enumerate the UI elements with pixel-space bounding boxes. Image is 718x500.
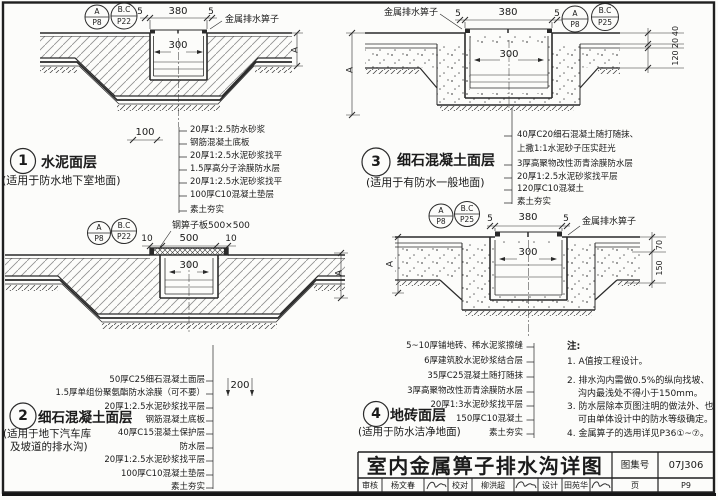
- sign-name-design: 田苑华: [564, 482, 588, 490]
- dim-inner: 300: [179, 261, 198, 271]
- atlas-number-value: 07J306: [669, 461, 704, 471]
- layer-label: 40厚C15混凝土保护层: [118, 429, 205, 438]
- detail-subtitle: (适用于防水洁净地面): [358, 427, 461, 438]
- ref-bubble-bottom: P8: [92, 19, 101, 27]
- ref-bubble-top: A: [572, 10, 577, 18]
- dim-inner: 300: [499, 50, 518, 60]
- layer-label: 6厚建筑胶水泥砂浆结合层: [424, 357, 523, 366]
- layer-label: 150厚C10混凝土: [456, 415, 523, 424]
- ref-bubble-bottom: P8: [570, 21, 579, 29]
- ref-bubble-top: B.C: [118, 6, 131, 14]
- atlas-number-label: 图集号: [621, 461, 650, 471]
- grate-label: 钢箅子板500×500: [172, 222, 250, 231]
- layer-label: 120厚C10混凝土: [517, 185, 584, 194]
- ref-bubble-bottom: P25: [460, 216, 474, 224]
- detail-number: 2: [18, 409, 28, 423]
- layer-label: 上撒1:1水泥砂子压实赶光: [517, 145, 616, 154]
- grate-label: 金属排水箅子: [225, 16, 279, 25]
- dim-width: 380: [498, 8, 517, 18]
- sign-label-review: 审核: [362, 482, 378, 490]
- sheet-title: 室内金属箅子排水沟详图: [358, 456, 612, 476]
- layer-label: 100厚C10混凝土垫层: [121, 470, 205, 479]
- detail-number: 1: [18, 154, 28, 168]
- ref-bubble-top: A: [94, 8, 99, 16]
- layer-label: 1.5厚单组份聚氨酯防水涂膜（可不要）: [55, 389, 205, 398]
- detail-subtitle: 及坡道的排水沟): [10, 442, 88, 453]
- dim-chain-20: 20: [672, 38, 680, 48]
- dim-chain-150: 150: [656, 260, 664, 275]
- dim-width: 380: [168, 7, 187, 17]
- ref-bubble-bottom: P22: [117, 18, 131, 26]
- ref-bubble-bottom: P8: [436, 218, 445, 226]
- note-line: 4. 金属箅子的选用详见P36①~⑦。: [567, 430, 709, 439]
- dim-depth-A: A: [336, 270, 345, 276]
- layer-label: 钢筋混凝土底板: [190, 139, 250, 148]
- layer-label: 素土夯实: [517, 198, 551, 207]
- layer-label: 20厚1:2.5水泥砂浆找平: [190, 178, 282, 187]
- ref-bubble-top: B.C: [599, 7, 612, 15]
- signature-scribble: [516, 482, 536, 488]
- dim-gap-right: 5: [563, 215, 569, 224]
- detail-number: 3: [371, 155, 381, 169]
- dim-gap-right: 5: [554, 10, 560, 19]
- layer-label: 35厚C25混凝土随打随抹: [427, 372, 523, 381]
- layer-label: 20厚1:2.5防水砂浆: [190, 126, 265, 135]
- layer-label: 素土夯实: [489, 429, 523, 438]
- detail-subtitle: (适用于有防水一般地面): [366, 177, 485, 188]
- ref-bubble-top: B.C: [118, 222, 131, 230]
- signature-scribble: [592, 482, 610, 488]
- dim-chain-70: 70: [656, 240, 664, 250]
- ref-bubble-top: A: [96, 224, 101, 232]
- layer-label: 3厚高聚物改性沥青涂膜防水层: [517, 160, 633, 169]
- grate-label: 金属排水箅子: [384, 9, 438, 18]
- detail-number: 4: [371, 407, 381, 421]
- dim-gap-left: 10: [141, 235, 152, 244]
- page-label: 页: [631, 482, 639, 490]
- dim-gap-left: 5: [487, 215, 493, 224]
- layer-label: 20厚1:2.5水泥砂浆找平层: [104, 403, 205, 412]
- dim-width: 500: [179, 234, 198, 244]
- sign-name-proof: 柳洪超: [481, 482, 505, 490]
- dim-gap-right: 5: [208, 8, 214, 17]
- layer-label: 40厚C20细石混凝土随打随抹、: [517, 131, 638, 140]
- layer-label: 素土夯实: [171, 483, 205, 492]
- layer-label: 20厚1:2.5水泥砂浆找平层: [104, 456, 205, 465]
- note-line: 1. A值按工程设计。: [567, 358, 648, 367]
- standard-drawing-page: A P8 B.C P22 5 380 5 金属排水箅子 300 A 100 1 …: [0, 0, 718, 500]
- layer-label: 50厚C25细石混凝土面层: [109, 376, 205, 385]
- page-number: P9: [681, 482, 691, 490]
- layer-label: 5~10厚铺地砖、稀水泥浆擦缝: [406, 342, 523, 351]
- dim-chain-40: 40: [672, 26, 680, 36]
- layer-label: 20厚1:2.5水泥砂浆找平: [190, 152, 282, 161]
- note-line: 可由单体设计中的防水等级确定。: [578, 416, 713, 425]
- detail-subtitle: (适用于地下汽车库: [3, 429, 91, 440]
- dim-width: 380: [518, 213, 537, 223]
- dim-100: 100: [135, 128, 154, 138]
- layer-label: 钢筋混凝土底板: [145, 416, 205, 425]
- signature-scribble: [427, 482, 446, 489]
- detail-title: 细石混凝土面层: [38, 412, 133, 426]
- sign-label-proof: 校对: [452, 482, 468, 490]
- notes-heading: 注:: [567, 342, 580, 352]
- detail-subtitle: (适用于防水地下室地面): [2, 175, 121, 186]
- note-line: 3. 防水层除本页图注明的做法外、也: [567, 403, 713, 412]
- ref-bubble-top: A: [438, 207, 443, 215]
- layer-label: 20厚1:2.5水泥砂浆找平层: [517, 173, 618, 182]
- layer-label: 3厚高聚物改性沥青涂膜防水层: [407, 387, 523, 396]
- ref-bubble-bottom: P25: [598, 19, 612, 27]
- layer-label: 100厚C10混凝土垫层: [190, 191, 274, 200]
- dim-inner: 300: [518, 248, 537, 258]
- ref-bubble-bottom: P22: [117, 233, 131, 241]
- layer-label: 1.5厚高分子涂膜防水层: [190, 165, 280, 174]
- grate-label: 金属排水箅子: [582, 218, 636, 227]
- note-line: 沟内最浅处不得小于150mm。: [578, 390, 703, 399]
- ref-bubble-bottom: P8: [94, 235, 103, 243]
- detail-3-drawing: [346, 4, 684, 205]
- dim-200: 200: [230, 381, 249, 391]
- dim-gap-right: 10: [225, 235, 236, 244]
- dim-gap-left: 5: [455, 10, 461, 19]
- detail-title: 地砖面层: [390, 409, 446, 423]
- dim-depth-A: A: [387, 261, 396, 267]
- sign-label-design: 设计: [542, 482, 558, 490]
- layer-label: 素土夯实: [190, 206, 224, 215]
- dim-inner: 300: [168, 41, 187, 51]
- note-line: 2. 排水沟内需做0.5%的纵向找坡、: [567, 377, 709, 386]
- detail-title: 水泥面层: [41, 156, 97, 170]
- dim-chain-120: 120: [672, 50, 680, 65]
- ref-bubble-top: B.C: [461, 205, 474, 213]
- sign-name-review: 杨文春: [391, 482, 415, 490]
- dim-depth-A: A: [347, 67, 356, 73]
- dim-gap-left: 5: [137, 8, 143, 17]
- layer-label: 防水层: [179, 443, 205, 452]
- dim-depth-A: A: [292, 47, 301, 53]
- layer-label: 20厚1:3水泥砂浆找平层: [431, 401, 524, 410]
- detail-title: 细石混凝土面层: [397, 154, 495, 168]
